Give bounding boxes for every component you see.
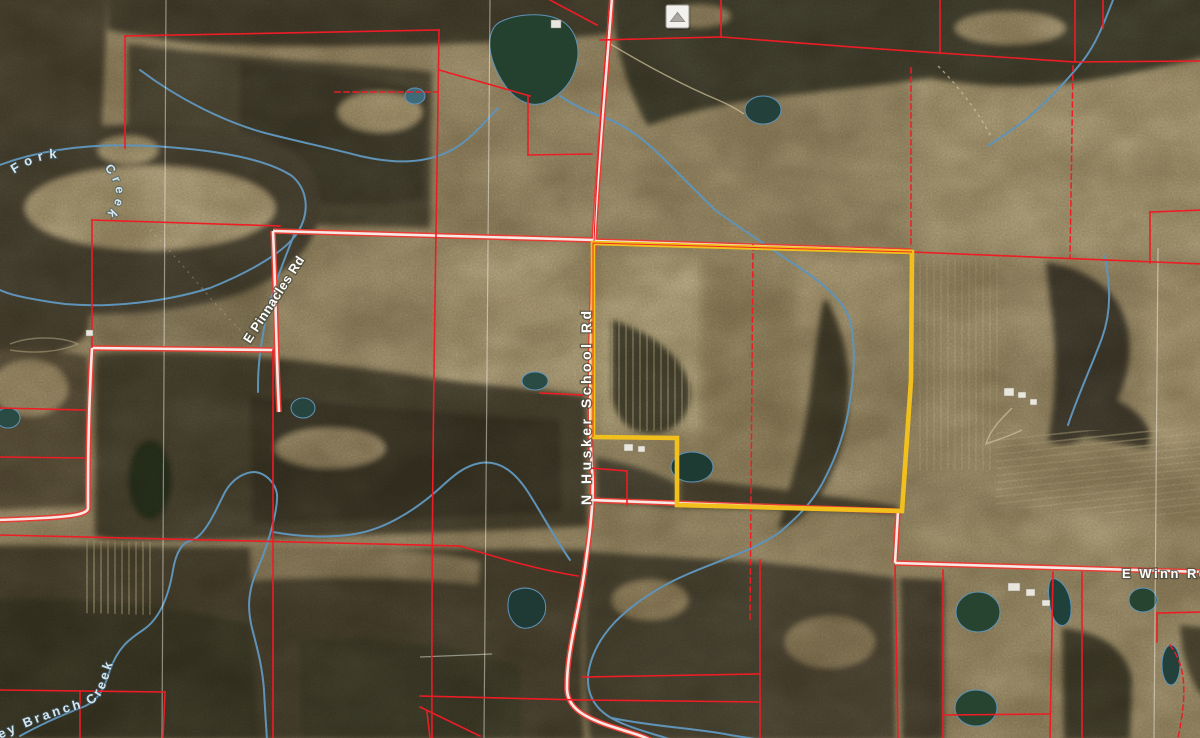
pond-sw-of-road: [508, 588, 546, 628]
map-control-button[interactable]: [666, 5, 691, 30]
terrain-grain-texture: [0, 0, 1200, 738]
satellite-map-canvas[interactable]: E Pinnacles Rd N Husker School Rd E Winn…: [0, 0, 1200, 738]
road-label-n-husker-school: N Husker School Rd: [578, 307, 594, 505]
map-viewport[interactable]: E Pinnacles Rd N Husker School Rd E Winn…: [0, 0, 1200, 738]
road-label-e-winn: E Winn Rd: [1122, 566, 1200, 581]
